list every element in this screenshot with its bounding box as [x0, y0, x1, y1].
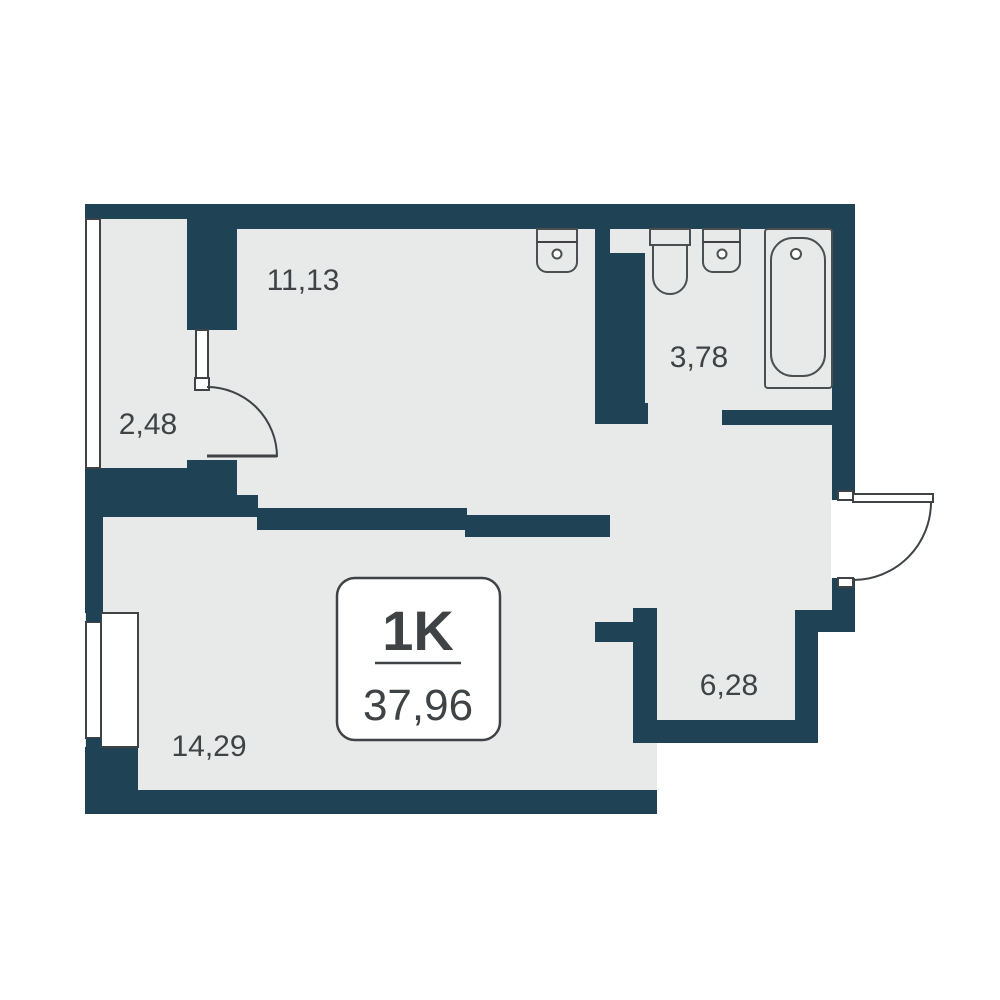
entry-door	[831, 491, 933, 587]
wall-bathroom-left	[595, 228, 648, 424]
floor-plan: 11,13 2,48 3,78 6,28 14,29 1K 37,96	[0, 0, 1000, 1000]
unit-info-box: 1K 37,96	[337, 578, 500, 740]
bedroom-window-cap-bottom	[86, 738, 101, 747]
toilet	[650, 229, 690, 294]
balcony-door-jamb	[195, 378, 209, 390]
room-label-kitchen: 11,13	[267, 264, 340, 297]
room-label-bedroom: 14,29	[171, 730, 246, 763]
bedroom-window-sill	[101, 613, 138, 747]
wall-bathroom-bottom	[722, 410, 832, 425]
total-area-label: 37,96	[363, 681, 473, 730]
room-label-hallway: 6,28	[700, 669, 758, 702]
wall-kitchen-bottom-right	[465, 515, 610, 537]
entry-door-jamb-bottom	[838, 578, 853, 587]
balcony-window	[86, 219, 100, 468]
wall-kitchen-bottom-left	[85, 468, 237, 517]
bedroom-window	[86, 622, 101, 738]
wall-hallway-left	[633, 608, 657, 743]
bathroom-sink	[703, 229, 740, 272]
wall-right-upper	[832, 204, 855, 500]
balcony-door-fixed-panel	[196, 330, 208, 378]
bedroom-window-cap-top	[86, 613, 101, 622]
entry-door-jamb-top	[838, 491, 853, 500]
wall-bottom-left-corner	[85, 747, 138, 814]
entry-door-swing-arc	[853, 502, 931, 580]
bathtub	[765, 229, 832, 388]
kitchen-sink	[537, 229, 577, 272]
wall-bedroom-bottom	[123, 790, 657, 814]
entry-door-leaf	[853, 494, 933, 502]
wall-hallway-bottom	[645, 720, 818, 743]
wall-kitchen-bottom-step	[235, 495, 258, 517]
wall-kitchen-bottom-mid	[257, 508, 467, 530]
wall-left-mid	[85, 517, 103, 613]
entry-door-opening	[831, 500, 856, 578]
room-label-bathroom: 3,78	[670, 341, 728, 374]
wall-hallway-left-flange	[595, 622, 633, 642]
wall-balcony-partition	[187, 219, 237, 330]
room-label-balcony: 2,48	[119, 408, 177, 441]
unit-type-label: 1K	[382, 599, 454, 662]
